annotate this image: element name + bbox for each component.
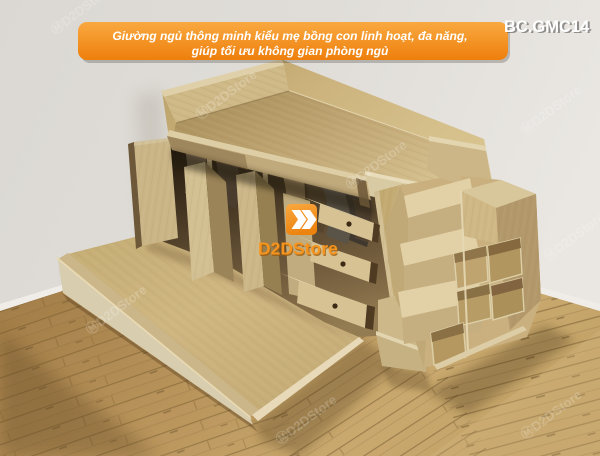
svg-text:Giường ngủ thông minh kiểu mẹ: Giường ngủ thông minh kiểu mẹ bồng con l… — [112, 29, 467, 43]
svg-text:giúp tối ưu không gian phòng n: giúp tối ưu không gian phòng ngủ — [191, 44, 389, 58]
svg-text:D2DStore: D2DStore — [258, 239, 338, 259]
svg-text:BC.GMC14: BC.GMC14 — [504, 18, 590, 36]
